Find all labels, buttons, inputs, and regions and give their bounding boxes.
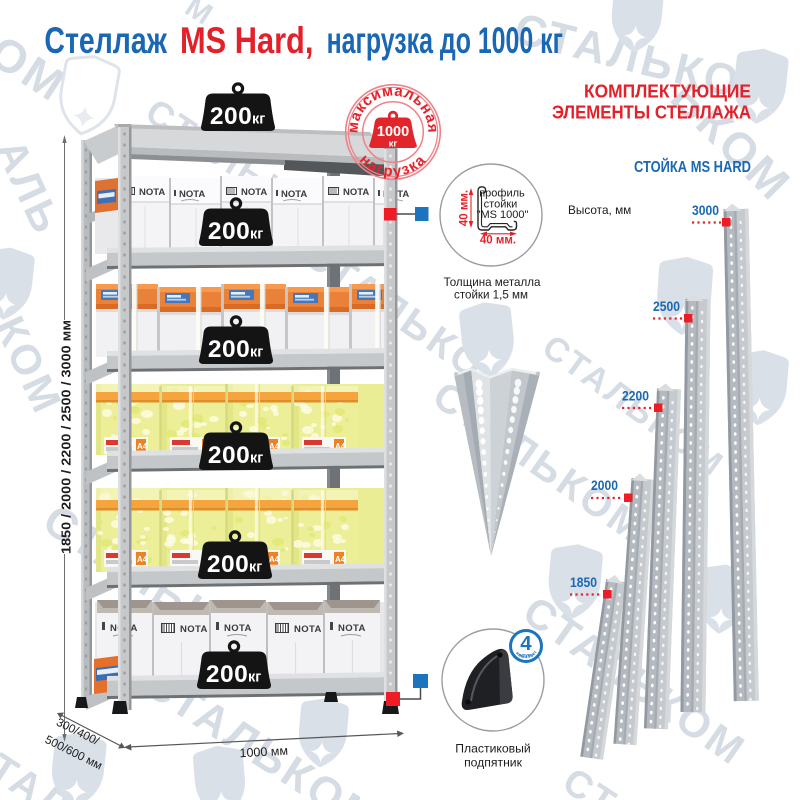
svg-text:кг: кг xyxy=(250,451,263,467)
svg-text:200: 200 xyxy=(208,218,250,245)
svg-text:2200: 2200 xyxy=(622,388,649,404)
svg-text:1850: 1850 xyxy=(570,574,597,590)
svg-text:нагрузка до 1000 кг: нагрузка до 1000 кг xyxy=(327,20,563,61)
svg-text:NOTA: NOTA xyxy=(179,189,205,200)
svg-text:NOTA: NOTA xyxy=(224,623,252,634)
svg-text:A4: A4 xyxy=(335,555,346,564)
svg-text:NOTA: NOTA xyxy=(281,189,307,200)
svg-text:NOTA: NOTA xyxy=(241,187,267,198)
svg-text:200: 200 xyxy=(210,103,252,130)
svg-text:кг: кг xyxy=(249,560,262,576)
svg-text:"MS 1000": "MS 1000" xyxy=(477,209,529,221)
svg-text:СТОЙКА MS HARD: СТОЙКА MS HARD xyxy=(634,158,751,176)
svg-text:200: 200 xyxy=(208,442,250,469)
svg-text:1000 мм: 1000 мм xyxy=(239,744,288,761)
svg-text:СТАЛЬКОМ: СТАЛЬКОМ xyxy=(555,760,777,800)
svg-text:3000: 3000 xyxy=(692,202,719,218)
svg-text:стойки 1,5 мм: стойки 1,5 мм xyxy=(454,289,528,302)
svg-text:подпятник: подпятник xyxy=(464,756,523,770)
svg-text:NOTA: NOTA xyxy=(139,187,165,198)
svg-text:200: 200 xyxy=(207,551,249,578)
svg-text:NOTA: NOTA xyxy=(343,187,369,198)
svg-text:NOTA: NOTA xyxy=(294,624,322,635)
svg-text:A4: A4 xyxy=(269,555,280,564)
svg-text:NOTA: NOTA xyxy=(180,624,208,635)
svg-text:кг: кг xyxy=(252,112,265,128)
svg-text:АЛЬ: АЛЬ xyxy=(0,132,71,242)
svg-text:ЭЛЕМЕНТЫ СТЕЛЛАЖА: ЭЛЕМЕНТЫ СТЕЛЛАЖА xyxy=(552,103,751,123)
svg-text:Толщина металла: Толщина металла xyxy=(444,276,541,289)
svg-text:A4: A4 xyxy=(137,555,148,564)
svg-text:кг: кг xyxy=(248,670,261,686)
svg-text:A4: A4 xyxy=(137,442,148,451)
svg-text:кг: кг xyxy=(389,139,398,150)
svg-text:2500: 2500 xyxy=(653,298,680,314)
svg-text:1850 / 2000 / 2200 / 2500 / 30: 1850 / 2000 / 2200 / 2500 / 3000 мм xyxy=(59,320,74,554)
svg-text:кг: кг xyxy=(250,227,263,243)
svg-text:КОМПЛЕКТУЮЩИЕ: КОМПЛЕКТУЮЩИЕ xyxy=(584,82,751,102)
svg-text:кг: кг xyxy=(250,345,263,361)
svg-text:Высота, мм: Высота, мм xyxy=(568,203,631,217)
svg-text:MS Hard,: MS Hard, xyxy=(180,20,313,61)
svg-text:NOTA: NOTA xyxy=(338,623,366,634)
svg-text:Пластиковый: Пластиковый xyxy=(455,742,530,756)
svg-text:40 мм.: 40 мм. xyxy=(480,235,516,247)
svg-text:40 мм.: 40 мм. xyxy=(459,190,471,226)
svg-text:200: 200 xyxy=(206,661,248,688)
svg-text:Стеллаж: Стеллаж xyxy=(44,20,167,61)
svg-text:2000: 2000 xyxy=(591,477,618,493)
svg-text:200: 200 xyxy=(208,336,250,363)
